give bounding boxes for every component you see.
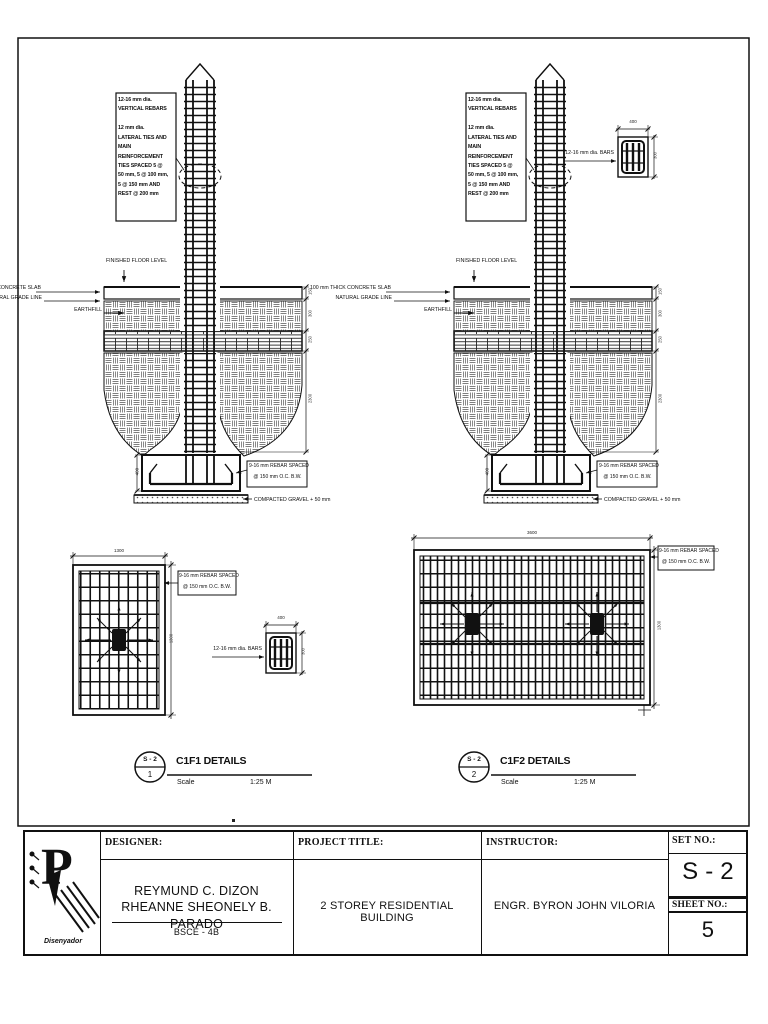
- detail2-bubble-number: 2: [458, 770, 490, 779]
- plan2-rebar-note: 9-16 mm REBAR SPACED @ 150 mm O.C. B.W.: [659, 549, 713, 566]
- column-bars-label-top: 12-16 mm dia. BARS: [556, 150, 614, 156]
- footing-depth-dim-left: 400: [134, 457, 139, 487]
- plan1-height-dim: 1300: [170, 623, 175, 653]
- plan1-width-dim: 1300: [99, 548, 139, 553]
- rebar-note-box-right: 12-16 mm dia. VERTICAL REBARS 12 mm dia.…: [468, 96, 524, 200]
- detail1-scale-label: Scale: [177, 779, 195, 787]
- side-dim-3-right: 250: [659, 324, 664, 354]
- section-width-dim-top: 400: [613, 119, 653, 124]
- side-dim-3-left: 250: [309, 324, 314, 354]
- company-logo: P: [25, 832, 101, 936]
- logo-text: Disenyador: [25, 938, 101, 946]
- gravel-label-left: COMPACTED GRAVEL + 50 mm: [254, 497, 330, 503]
- project-title: 2 STOREY RESIDENTIAL BUILDING: [293, 900, 481, 924]
- column-bars-label-bottom: 12-16 mm dia. BARS: [204, 646, 262, 652]
- detail2-scale-value: 1:25 M: [574, 779, 595, 787]
- section-height-dim-top: 300: [654, 140, 659, 170]
- slab-label-left: 100 mm THICK CONCRETE SLAB: [0, 285, 34, 291]
- footing-rebar-line1: 9-16 mm REBAR SPACED: [659, 549, 713, 555]
- gravel-label-right: COMPACTED GRAVEL + 50 mm: [604, 497, 680, 503]
- detail2-title: C1F2 DETAILS: [500, 755, 570, 767]
- titleblock-divider-3: [481, 830, 482, 956]
- plan1-rebar-note: 9-16 mm REBAR SPACED @ 150 mm O.C. B.W.: [179, 574, 235, 591]
- instructor-name: ENGR. BYRON JOHN VILORIA: [481, 900, 668, 912]
- designer-label: DESIGNER:: [105, 837, 162, 848]
- footing-rebar-line1: 9-16 mm REBAR SPACED: [599, 464, 656, 470]
- section-height-dim-bottom: 300: [302, 636, 307, 666]
- grade-line-label-left: NATURAL GRADE LINE: [0, 295, 42, 301]
- detail2-scale-label: Scale: [501, 779, 519, 787]
- drawing-sheet: 12-16 mm dia. VERTICAL REBARS 12 mm dia.…: [0, 0, 768, 1024]
- footing-rebar-line1: 9-16 mm REBAR SPACED: [179, 574, 235, 580]
- footing-rebar-line1: 9-16 mm REBAR SPACED: [249, 464, 306, 470]
- set-cell-rule: [668, 853, 748, 854]
- footing-depth-dim-right: 400: [484, 457, 489, 487]
- project-title-label: PROJECT TITLE:: [298, 837, 384, 848]
- stray-dot: [232, 819, 235, 822]
- finished-floor-label-right: FINISHED FLOOR LEVEL: [456, 258, 517, 264]
- designer-names: REYMUND C. DIZON RHEANNE SHEONELY B. PAR…: [100, 883, 293, 932]
- set-no-label: SET NO.:: [672, 835, 716, 846]
- footing-rebar-note-right: 9-16 mm REBAR SPACED @ 150 mm O.C. B.W.: [599, 464, 656, 481]
- designer-underline: [112, 922, 282, 923]
- detail2-bubble-sheet: S - 2: [458, 756, 490, 764]
- section-width-dim-bottom: 400: [261, 615, 301, 620]
- titleblock-divider-2: [293, 830, 294, 956]
- titleblock-header-rule: [100, 859, 668, 860]
- logo-p-icon: P: [30, 839, 100, 932]
- side-dim-4-left: 2300: [309, 383, 314, 413]
- earthfill-label-right: EARTHFILL: [416, 307, 452, 313]
- sheet-no-value: 5: [668, 917, 748, 943]
- sheet-no-label: SHEET NO.:: [668, 896, 748, 913]
- footing-rebar-line2: @ 150 mm O.C. B.W.: [599, 475, 656, 481]
- plan2-width-dim: 3600: [512, 530, 552, 535]
- footing-rebar-line2: @ 150 mm O.C. B.W.: [249, 475, 306, 481]
- slab-label-right: 100 mm THICK CONCRETE SLAB: [310, 285, 384, 291]
- detail1-bubble-number: 1: [134, 770, 166, 779]
- rebar-note-box-left: 12-16 mm dia. VERTICAL REBARS 12 mm dia.…: [118, 96, 174, 200]
- detail1-title: C1F1 DETAILS: [176, 755, 246, 767]
- detail1-scale-value: 1:25 M: [250, 779, 271, 787]
- grade-line-label-right: NATURAL GRADE LINE: [328, 295, 392, 301]
- side-dim-4-right: 2300: [659, 383, 664, 413]
- instructor-label: INSTRUCTOR:: [486, 837, 558, 848]
- designer-section: BSCE - 4B: [100, 927, 293, 937]
- footing-rebar-note-left: 9-16 mm REBAR SPACED @ 150 mm O.C. B.W.: [249, 464, 306, 481]
- earthfill-label-left: EARTHFILL: [66, 307, 102, 313]
- plan2-height-dim: 1300: [658, 610, 663, 640]
- footing-rebar-line2: @ 150 mm O.C. B.W.: [659, 560, 713, 566]
- finished-floor-label-left: FINISHED FLOOR LEVEL: [106, 258, 167, 264]
- footing-rebar-line2: @ 150 mm O.C. B.W.: [179, 585, 235, 591]
- set-no-value: S - 2: [668, 858, 748, 886]
- detail1-bubble-sheet: S - 2: [134, 756, 166, 764]
